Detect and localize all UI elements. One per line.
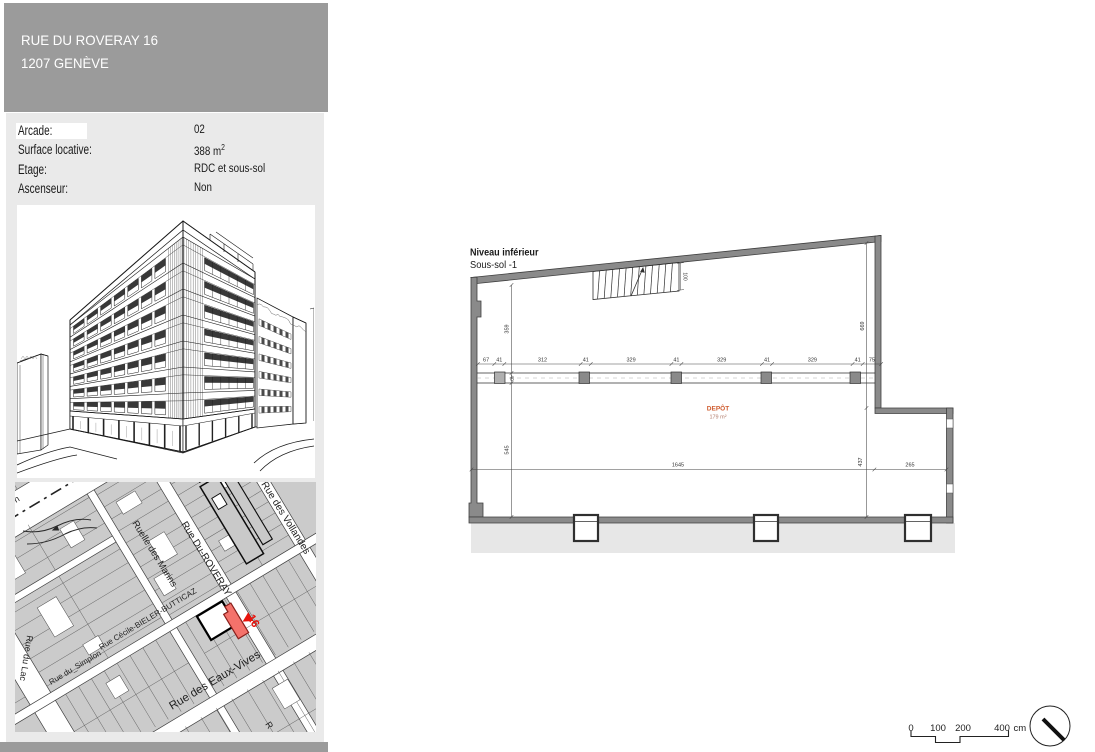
svg-text:41: 41	[764, 358, 770, 364]
svg-text:329: 329	[717, 358, 726, 364]
svg-text:0: 0	[908, 723, 913, 734]
svg-text:179 m²: 179 m²	[709, 415, 726, 421]
svg-text:41: 41	[496, 358, 502, 364]
svg-text:DEPÔT: DEPÔT	[707, 404, 729, 413]
svg-text:67: 67	[483, 358, 489, 364]
svg-text:Sous-sol -1: Sous-sol -1	[470, 260, 517, 271]
svg-text:Niveau inférieur: Niveau inférieur	[470, 248, 539, 259]
svg-text:100: 100	[930, 723, 946, 734]
svg-text:545: 545	[505, 445, 511, 454]
svg-text:100: 100	[682, 272, 688, 281]
svg-text:40: 40	[508, 375, 514, 381]
svg-text:41: 41	[673, 358, 679, 364]
svg-text:400: 400	[994, 723, 1010, 734]
svg-text:41: 41	[583, 358, 589, 364]
svg-text:329: 329	[808, 358, 817, 364]
svg-text:359: 359	[505, 324, 511, 333]
svg-text:1645: 1645	[672, 463, 684, 469]
svg-text:41: 41	[855, 358, 861, 364]
svg-text:cm: cm	[1014, 723, 1027, 734]
svg-text:329: 329	[627, 358, 636, 364]
svg-text:312: 312	[538, 358, 547, 364]
svg-text:437: 437	[858, 457, 864, 466]
svg-text:669: 669	[860, 321, 866, 330]
svg-text:75: 75	[869, 358, 875, 364]
svg-text:265: 265	[905, 463, 914, 469]
svg-text:200: 200	[955, 723, 971, 734]
